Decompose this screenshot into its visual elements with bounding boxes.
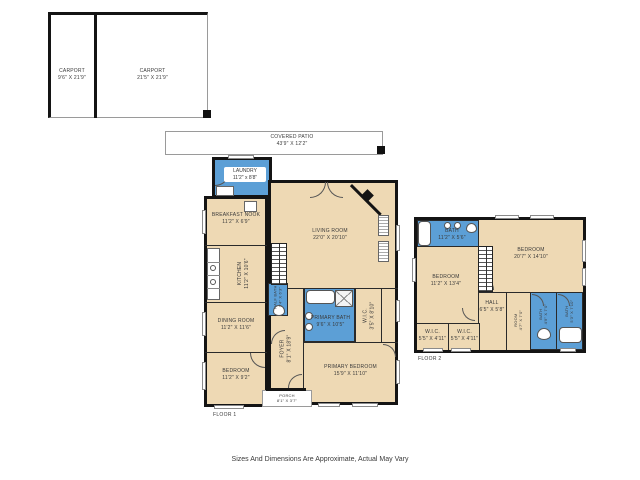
carport-right-label: CARPORT 21'5" X 21'9": [97, 68, 208, 81]
floor2-bath-mid-label: BATH 4'9" X 7'0": [530, 292, 557, 336]
covered-patio-label: COVERED PATIO 43'9" X 12'2": [252, 134, 332, 147]
floor2-window-south: [423, 348, 443, 352]
room-dims: 4'7" X 7'0": [518, 310, 523, 330]
room-name: BREAKFAST NOOK: [204, 212, 268, 219]
floor2-window-south: [451, 348, 471, 352]
room-name: KITCHEN: [237, 258, 244, 289]
floor2-window-north: [530, 215, 554, 219]
floor2-window-south: [560, 348, 576, 352]
room-dims: 11'2" X 10'6": [243, 258, 250, 289]
room-dims: 6'5" X 5'8": [477, 307, 507, 314]
floor2-wic-b-label: W.I.C. 5'5" X 4'11": [449, 329, 480, 342]
living-builtin-shelf: [378, 241, 389, 262]
primary-bedroom-north-wall: [304, 342, 398, 343]
primary-bedroom-label: PRIMARY BEDROOM 15'9" X 11'10": [303, 364, 398, 377]
carport-left-label: CARPORT 9'6" X 21'9": [50, 68, 94, 81]
kitchen-sink: [210, 279, 216, 285]
room-dims: 8'1" X 18'9": [285, 334, 292, 362]
living-room-label: LIVING ROOM 22'0" X 20'10": [290, 228, 370, 241]
breakfast-builtin: [244, 201, 257, 212]
kitchen-label: KITCHEN 11'2" X 10'6": [218, 245, 268, 302]
primary-bedroom-window-south: [318, 403, 340, 407]
room-dims: 11'2" X 13'4": [415, 281, 477, 288]
room-dims: 11'2" x 8'8": [226, 175, 264, 182]
floor1-tag: FLOOR 1: [213, 412, 237, 418]
dining-room-label: DINING ROOM 11'2" X 11'6": [204, 318, 268, 331]
floor2-window-east: [582, 268, 586, 286]
laundry-label: LAUNDRY 11'2" x 8'8": [224, 167, 266, 182]
floor2-bath-label: BATH 11'2" X 5'6": [430, 228, 474, 241]
disclaimer-text: Sizes And Dimensions Are Approximate, Ac…: [0, 456, 640, 463]
room-dims: 9'6" X 21'9": [50, 75, 94, 82]
room-dims: 11'2" X 9'2": [204, 375, 268, 382]
floor2-bedroom-left-label: BEDROOM 11'2" X 13'4": [415, 274, 477, 287]
washer-dryer: [216, 186, 234, 196]
living-builtin-shelf: [378, 215, 389, 236]
primary-bedroom-window-south: [352, 403, 378, 407]
living-window-east: [396, 225, 400, 251]
kitchen-sink: [210, 265, 216, 271]
patio-post: [377, 146, 385, 154]
front-wall: [266, 388, 306, 391]
foyer-label: FOYER 8'1" X 18'9": [268, 316, 303, 380]
carport-divider-wall: [94, 12, 97, 118]
room-name: PRIMARY BATH: [308, 315, 353, 322]
primary-bath-label: PRIMARY BATH 9'6" X 10'5": [308, 315, 353, 328]
wic-label: W.I.C. 3'5" X 8'10": [355, 288, 382, 342]
kitchen-dining-wall: [205, 302, 267, 303]
room-name: W.I.C.: [362, 301, 369, 329]
room-dims: 3'4" X 6'3": [278, 285, 283, 309]
carport-outline: [48, 12, 208, 118]
floor-plan-canvas: COVERED PATIO 43'9" X 12'2" CARPORT 9'6"…: [0, 0, 640, 480]
room-dims: 11'2" X 5'6": [430, 235, 474, 242]
floor1-staircase: [271, 243, 287, 285]
bedroom-window-south: [214, 405, 244, 409]
room-dims: 43'9" X 12'2": [252, 141, 332, 148]
room-dims: 9'6" X 10'5": [308, 322, 353, 329]
floor2-window-north: [495, 215, 519, 219]
room-dims: 11'2" X 11'6": [204, 325, 268, 332]
room-dims: 22'0" X 20'10": [290, 235, 370, 242]
floor2-wic-a-label: W.I.C. 5'5" X 4'11": [417, 329, 448, 342]
porch-label: PORCH 8'1" X 3'7": [262, 393, 312, 403]
room-dims: 4'9" X 7'0": [543, 304, 548, 324]
floor2-room-label: ROOM 4'7" X 7'0": [506, 292, 530, 348]
floor2-hall-label: HALL 6'5" X 5'8": [477, 300, 507, 313]
room-dims: 5'3" X 7'10": [570, 300, 575, 323]
room-dims: 15'9" X 11'10": [303, 371, 398, 378]
half-bath-label: HALF BATH 3'4" X 6'3": [268, 283, 288, 311]
room-dims: 11'2" X 6'9": [204, 219, 268, 226]
primary-bath-tub: [306, 290, 335, 304]
floor2-bath-right-label: BATH 5'3" X 7'10": [556, 292, 583, 330]
floor2-bedroom-large-label: BEDROOM 20'7" X 14'10": [479, 247, 583, 260]
room-dims: 5'5" X 4'11": [449, 336, 480, 343]
carport-post: [203, 110, 211, 118]
room-name: FOYER: [279, 334, 286, 362]
room-dims: 3'5" X 8'10": [369, 301, 376, 329]
breakfast-nook-label: BREAKFAST NOOK 11'2" X 6'9": [204, 212, 268, 225]
room-dims: 5'5" X 4'11": [417, 336, 448, 343]
room-dims: 8'1" X 3'7": [262, 398, 312, 403]
primary-bath-shower: [335, 290, 353, 307]
laundry-window: [228, 155, 254, 159]
room-dims: 20'7" X 14'10": [479, 254, 583, 261]
hall-window-east: [396, 300, 400, 322]
bedroom-label: BEDROOM 11'2" X 9'2": [204, 368, 268, 381]
floor2-tag: FLOOR 2: [418, 356, 442, 362]
room-dims: 21'5" X 21'9": [97, 75, 208, 82]
